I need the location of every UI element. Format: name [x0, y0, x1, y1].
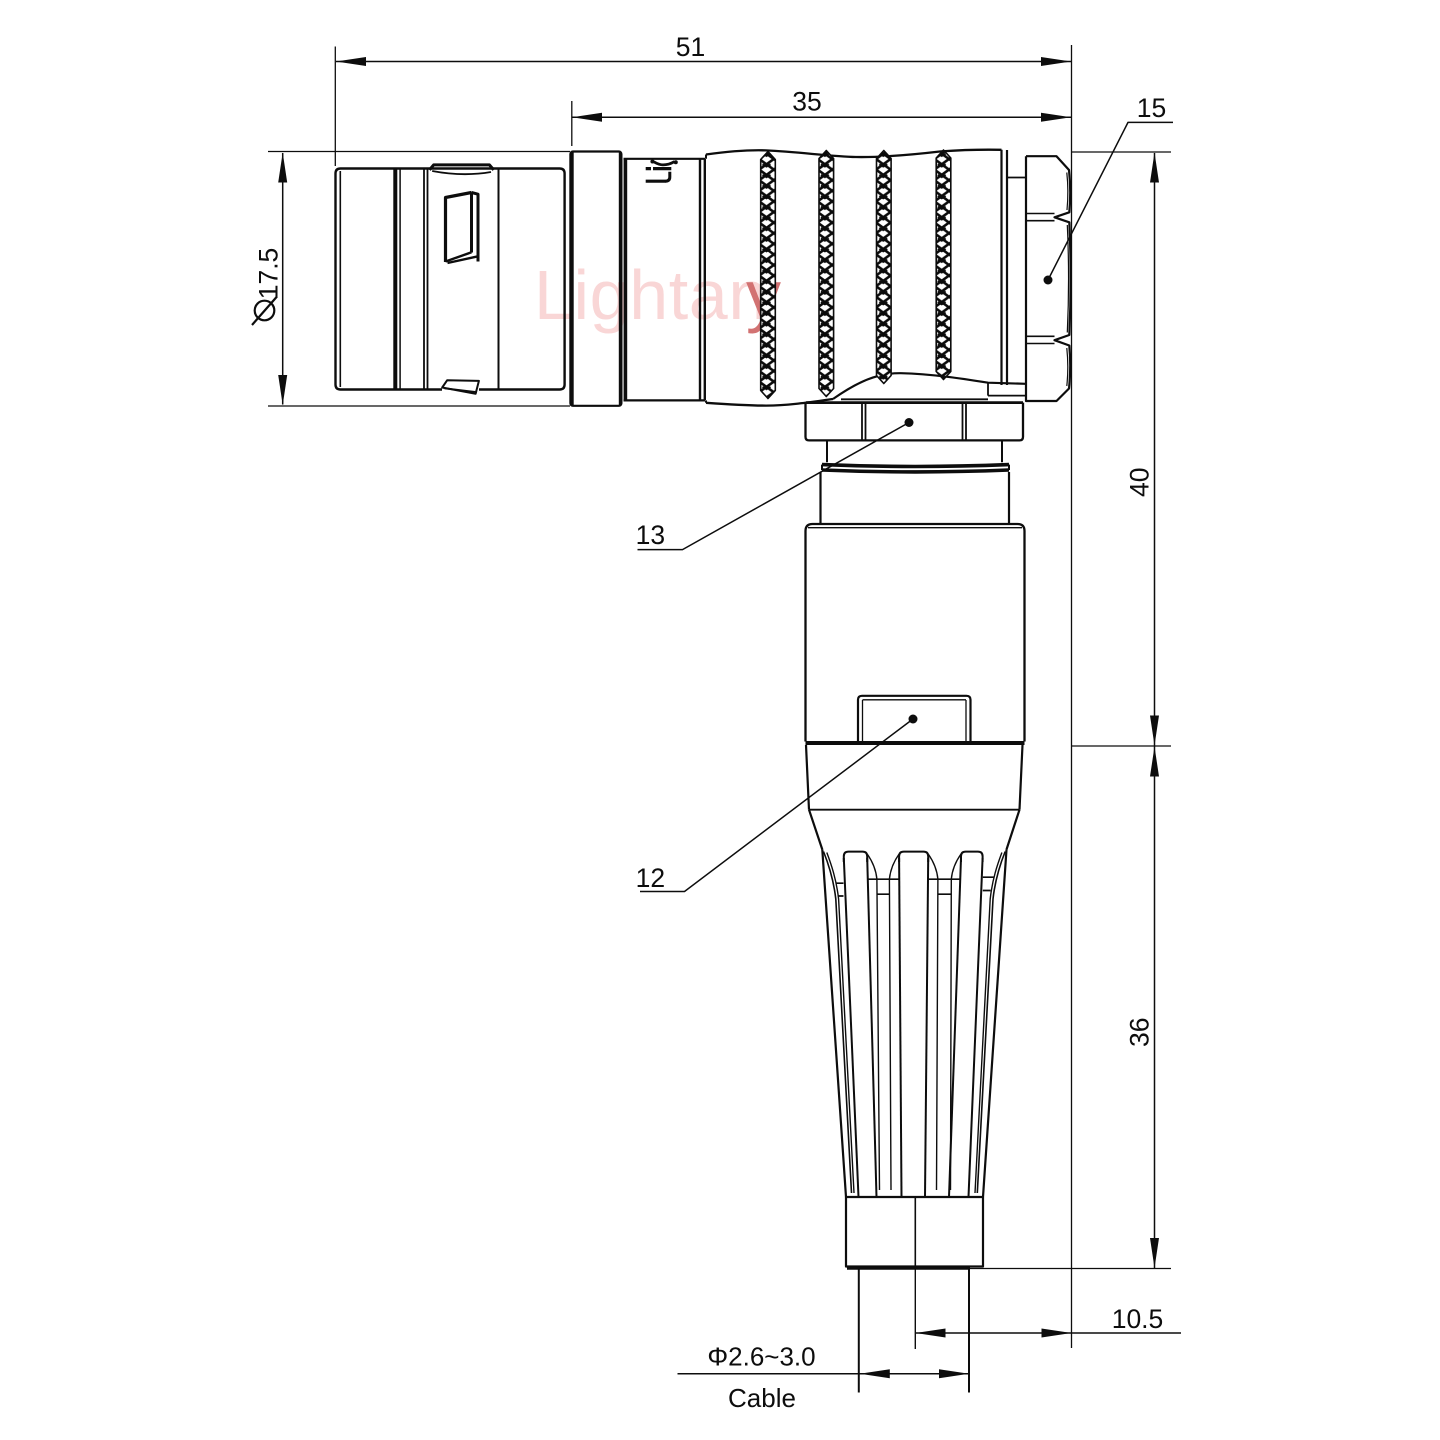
svg-text:15: 15	[1137, 93, 1166, 123]
svg-text:Φ2.6~3.0: Φ2.6~3.0	[707, 1341, 815, 1371]
svg-text:35: 35	[792, 87, 821, 117]
svg-text:40: 40	[1125, 468, 1155, 497]
svg-text:13: 13	[636, 520, 665, 550]
svg-text:Lightan: Lightan	[534, 256, 768, 334]
svg-text:51: 51	[676, 32, 705, 62]
svg-text:Cable: Cable	[728, 1383, 796, 1413]
svg-text:10.5: 10.5	[1112, 1304, 1164, 1334]
svg-text:12: 12	[636, 863, 665, 893]
svg-text:17.5: 17.5	[254, 248, 284, 300]
svg-text:36: 36	[1125, 1018, 1155, 1047]
